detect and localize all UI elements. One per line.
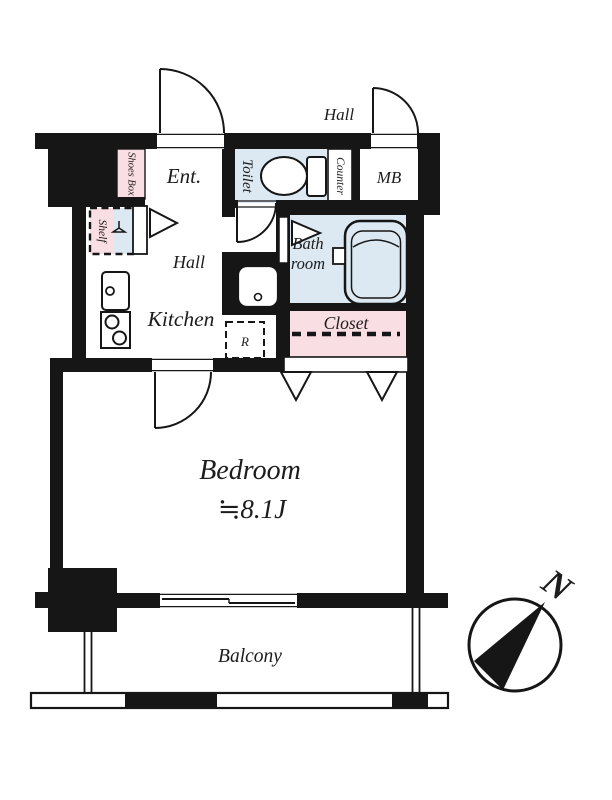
wall-bottom-mid-seg <box>297 593 390 608</box>
entrance-door-arc <box>160 69 224 133</box>
compass-icon: N <box>469 561 581 691</box>
bedroom-size-label: ≒8.1J <box>218 494 288 524</box>
railing-solid-right <box>392 693 428 708</box>
hall-upper-label: Hall <box>323 105 355 124</box>
wall-counter-mb <box>352 149 360 203</box>
wall-stub-left <box>35 592 48 608</box>
washbasin-drain <box>255 294 262 301</box>
bath-door-panel <box>279 217 288 263</box>
toilet-tank-icon <box>307 157 326 196</box>
kitchen-label: Kitchen <box>147 307 215 331</box>
bathroom-label-1: Bath <box>292 234 323 253</box>
toilet-door-arc <box>237 203 276 242</box>
closet-door-triangle-1 <box>281 372 311 400</box>
bathroom-label-2: room <box>291 254 325 273</box>
toilet-bowl-icon <box>261 157 307 195</box>
balcony-railing <box>31 693 448 708</box>
closet-door-band <box>284 357 408 372</box>
refrigerator-label: R <box>240 334 249 349</box>
wall-bottom-right <box>390 593 448 608</box>
bath-faucet-icon <box>333 248 345 264</box>
floorplan-svg: N Hall Ent. Shoes Box Toilet Counter MB … <box>0 0 612 800</box>
closet-label: Closet <box>324 313 370 333</box>
pillar-top-left <box>48 149 117 207</box>
wall-kitchen-left <box>72 207 86 372</box>
mb-door-arc <box>373 88 418 133</box>
wall-top-right <box>417 133 440 149</box>
railing-solid-left <box>125 693 217 708</box>
mb-label: MB <box>376 168 402 187</box>
sink-drain <box>106 287 114 295</box>
bedroom-threshold <box>152 359 213 370</box>
balcony-post-left <box>85 632 92 694</box>
wall-toilet-bath-divider <box>284 200 440 215</box>
floorplan-page: N Hall Ent. Shoes Box Toilet Counter MB … <box>0 0 612 800</box>
stove-burner-2 <box>113 332 126 345</box>
shoes-box-label: Shoes Box <box>126 152 137 196</box>
north-needle <box>474 602 545 690</box>
entrance-threshold <box>157 134 224 147</box>
mb-threshold <box>371 134 417 147</box>
wall-kitchen-bottom-left <box>50 358 152 372</box>
hall-inner-label: Hall <box>172 252 205 272</box>
wall-top-left <box>35 133 157 149</box>
ent-hall-door-triangle <box>150 209 177 237</box>
toilet-label: Toilet <box>239 159 255 193</box>
wall-top-mid <box>224 133 371 149</box>
wall-bedroom-left <box>50 360 63 575</box>
shelf-label: Shelf <box>96 220 108 245</box>
balcony-label: Balcony <box>218 646 282 667</box>
stove-burner-1 <box>106 316 119 329</box>
closet-door-triangle-2 <box>367 372 397 400</box>
counter-label: Counter <box>334 157 346 195</box>
wall-right-main <box>406 215 424 597</box>
north-label: N <box>534 561 581 610</box>
wall-bottom-left-seg <box>63 593 160 608</box>
entrance-label: Ent. <box>166 164 201 188</box>
ent-hall-door-panel <box>133 206 147 254</box>
wall-toilet-bottom <box>222 200 238 208</box>
bedroom-door-arc <box>155 372 211 428</box>
balcony-post-right <box>413 608 420 694</box>
wall-kitchen-bottom-right <box>213 358 284 372</box>
bedroom-label: Bedroom <box>199 455 301 486</box>
